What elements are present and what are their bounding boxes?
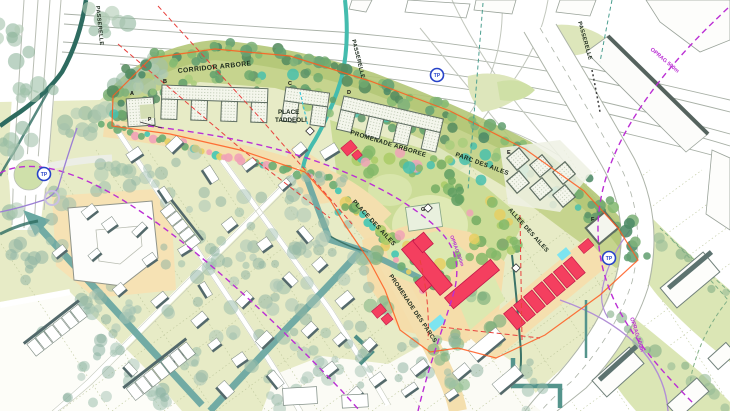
svg-text:D: D (347, 90, 351, 96)
svg-text:A: A (130, 91, 134, 97)
svg-text:TP: TP (434, 73, 441, 79)
svg-text:TADDEOLI: TADDEOLI (275, 117, 307, 124)
svg-text:PLACE: PLACE (278, 109, 299, 116)
svg-text:C: C (288, 81, 292, 87)
svg-text:E: E (507, 150, 511, 156)
svg-text:TP: TP (606, 256, 613, 262)
svg-text:B: B (163, 79, 167, 85)
svg-text:TP: TP (41, 172, 48, 178)
